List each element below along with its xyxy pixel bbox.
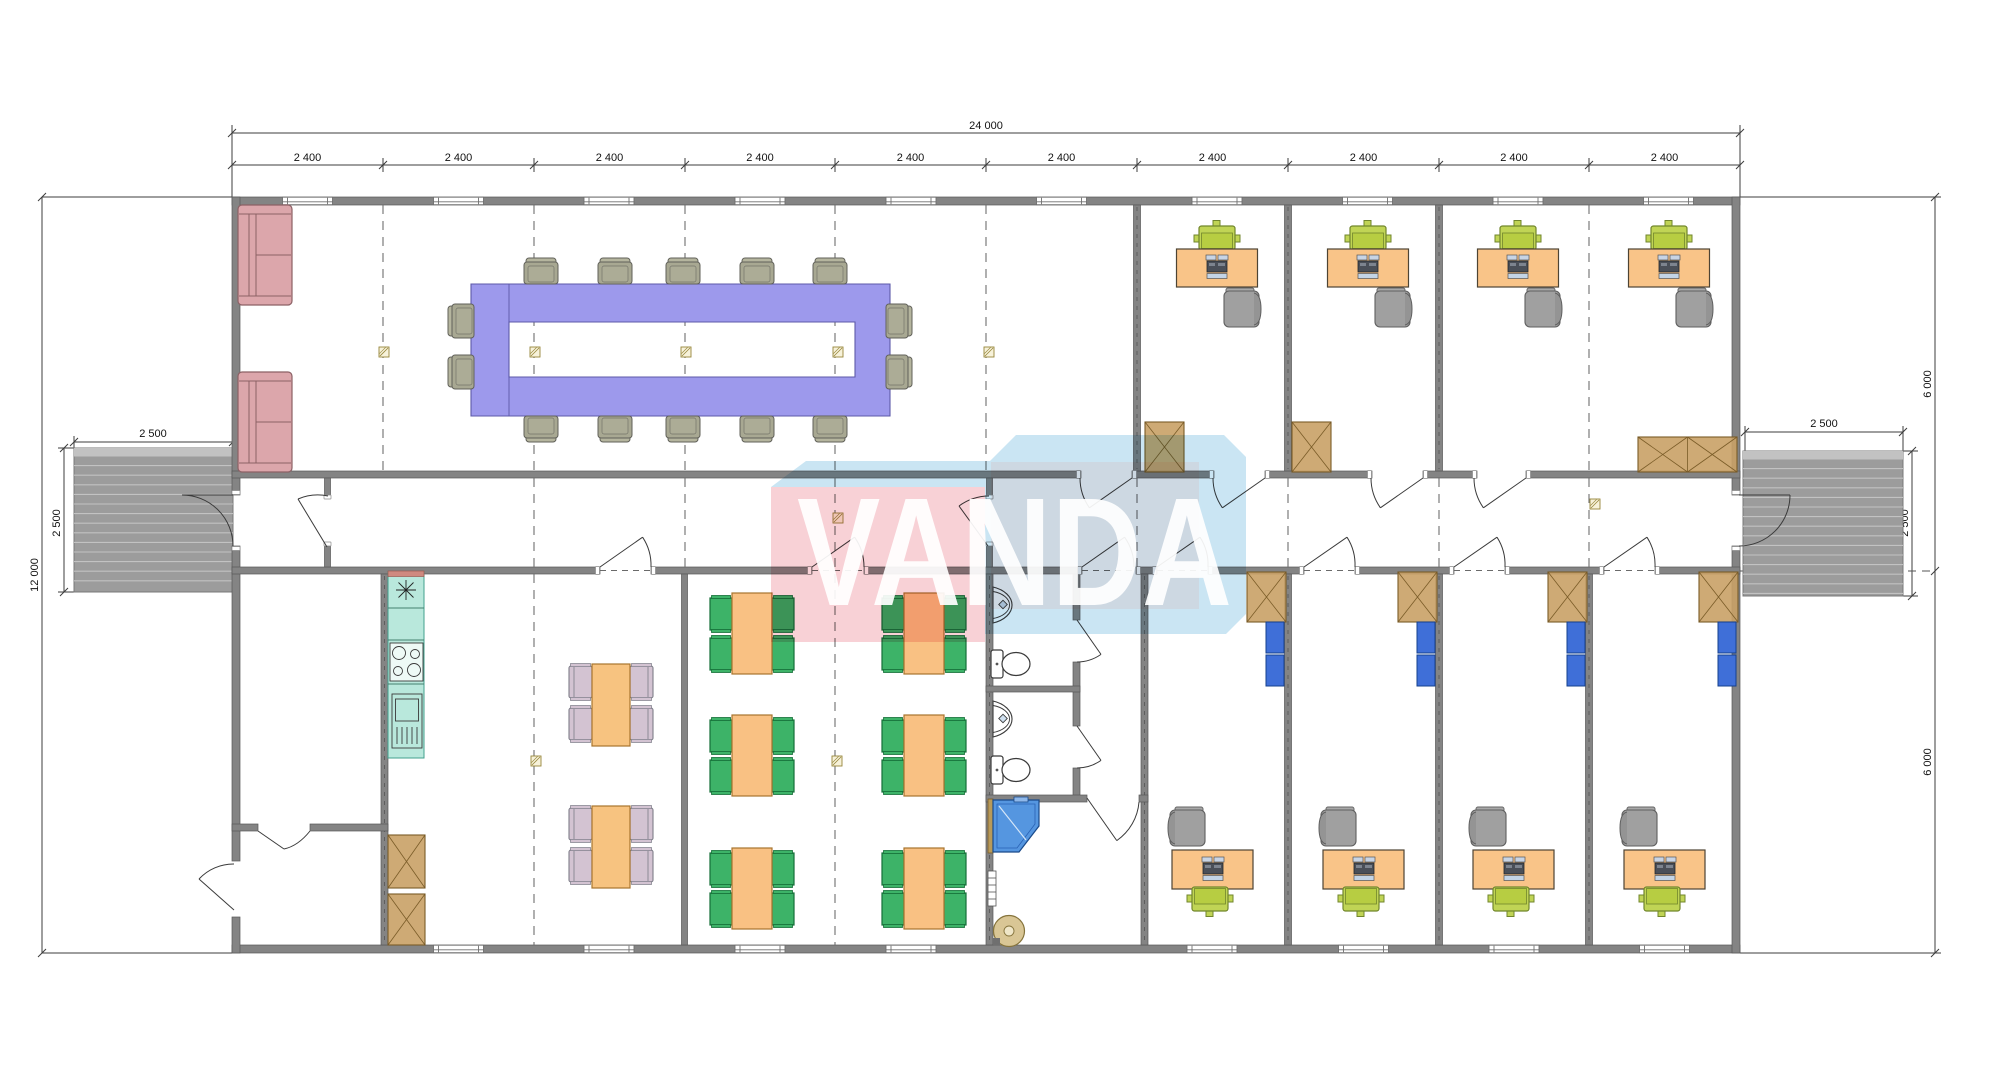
svg-text:2 400: 2 400: [1651, 152, 1679, 164]
svg-text:2 400: 2 400: [596, 152, 624, 164]
svg-text:2 400: 2 400: [897, 152, 925, 164]
svg-text:VANDA: VANDA: [797, 466, 1232, 638]
svg-text:2 500: 2 500: [139, 428, 167, 440]
svg-text:6 000: 6 000: [1922, 370, 1934, 398]
svg-text:24 000: 24 000: [969, 120, 1003, 132]
svg-text:2 400: 2 400: [294, 152, 322, 164]
svg-text:2 500: 2 500: [1810, 418, 1838, 430]
svg-text:6 000: 6 000: [1922, 748, 1934, 776]
svg-text:2 400: 2 400: [1199, 152, 1227, 164]
svg-text:2 400: 2 400: [1500, 152, 1528, 164]
svg-text:2 400: 2 400: [445, 152, 473, 164]
svg-text:2 500: 2 500: [51, 509, 63, 537]
svg-text:2 400: 2 400: [746, 152, 774, 164]
svg-text:12 000: 12 000: [29, 558, 41, 592]
svg-text:2 400: 2 400: [1048, 152, 1076, 164]
svg-text:2 400: 2 400: [1350, 152, 1378, 164]
